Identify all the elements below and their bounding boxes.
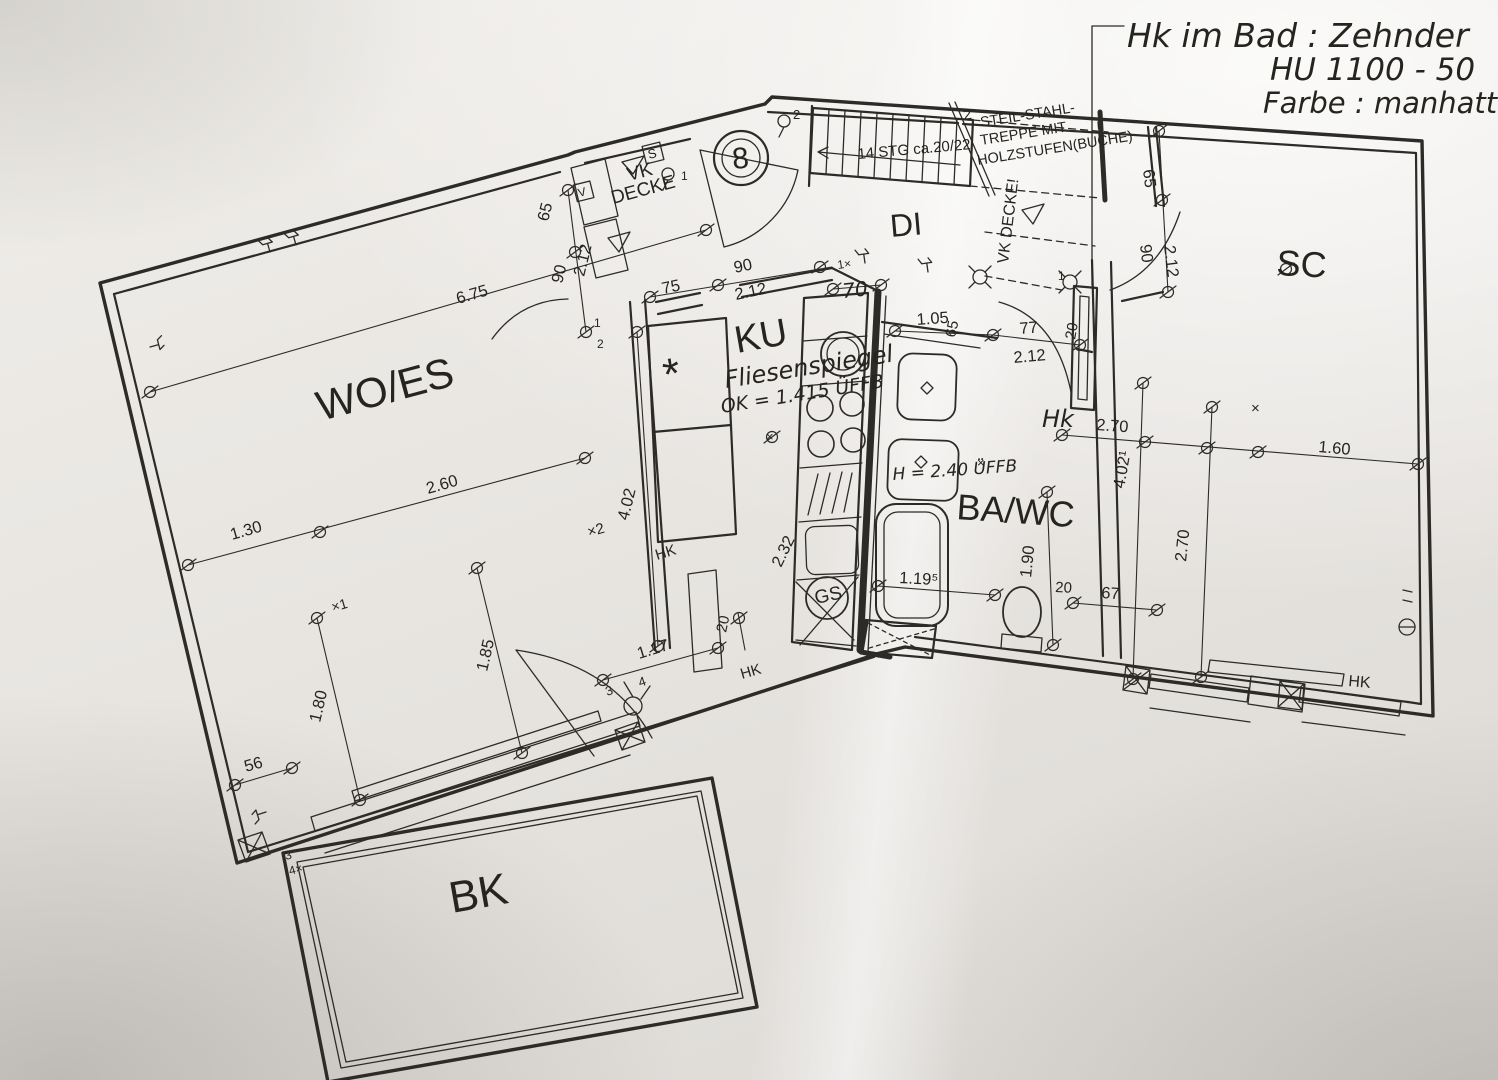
room-label-sc: SC: [1276, 242, 1328, 286]
radiator-bad-inner: [1078, 296, 1089, 400]
dim-1195: 1.19⁵: [899, 569, 939, 589]
door-swing: [516, 650, 652, 756]
triangle-symbol: [1022, 204, 1044, 224]
drainer: [808, 472, 852, 515]
room-label-di: DI: [888, 205, 923, 244]
doors: [492, 150, 1180, 756]
dim-212: 2.12: [570, 242, 595, 278]
switch-icon: [855, 248, 870, 264]
dimension-endpoints: [142, 125, 1426, 806]
bathtub-inner: [884, 512, 940, 618]
dim-20: 20: [1055, 579, 1073, 597]
scanned-floor-plan: Hk im Bad : Zehnder HU 1100 - 50 Farbe :…: [0, 0, 1498, 1080]
dim-65: 65: [534, 201, 556, 223]
cabinet-star: *: [659, 349, 684, 400]
mark-2: 2: [597, 337, 604, 351]
dim-77: 77: [1019, 318, 1039, 338]
diamond-mark: [915, 382, 933, 468]
dim-260: 2.60: [424, 472, 460, 498]
dim-67: 67: [1101, 584, 1121, 603]
dim-90: 90: [732, 255, 754, 276]
window-strip: [311, 712, 640, 831]
switch-icon: [918, 257, 933, 273]
mark-4x: 4×: [287, 861, 304, 878]
leader-line: [1092, 26, 1124, 285]
hand-note-line3: Farbe : manhattan: [1263, 86, 1498, 120]
hand-note-line1: Hk im Bad : Zehnder: [1127, 16, 1471, 55]
dim-65: 65: [942, 319, 962, 339]
kitchen-sink-2: [805, 525, 859, 575]
electrical-symbols: [148, 115, 1415, 824]
dim-90: 90: [548, 263, 570, 285]
mark-1: 1: [594, 316, 601, 330]
dim-185: 1.85: [473, 638, 498, 673]
circle-8-label: 8: [731, 142, 751, 176]
door-swing: [492, 299, 568, 339]
dim-20: 20: [713, 614, 733, 634]
dim-212: 2.12: [1013, 346, 1047, 367]
dim-402: 4.02: [614, 486, 639, 522]
mark-x: ×: [766, 429, 774, 444]
floor-plan-drawing: Hk im Bad : Zehnder HU 1100 - 50 Farbe :…: [0, 0, 1498, 1080]
dim-212: 2.12: [733, 280, 768, 304]
room-label-bk: BK: [445, 864, 511, 922]
dim-20: 20: [1062, 321, 1082, 340]
label-hk: HK: [738, 661, 763, 683]
dim-56: 56: [242, 753, 265, 775]
dim-402-1: 4.02¹: [1110, 449, 1134, 490]
dim-212: 2.12: [1160, 244, 1182, 278]
label-hk: HK: [653, 541, 678, 563]
mark-1: 1: [1058, 269, 1065, 283]
dim-70: 70: [841, 276, 869, 303]
dim-270: 2.70: [1096, 416, 1129, 436]
mark-x: ×: [1251, 400, 1260, 417]
stairs-vk-decke: VK DECKE!: [995, 178, 1022, 265]
hand-height-note: H = 2.40 ÜFFB: [892, 454, 1018, 485]
dim-160: 1.60: [1318, 438, 1352, 459]
switch-icon: [251, 807, 268, 824]
mark-x2: ×2: [585, 520, 606, 541]
label-hk: HK: [1348, 673, 1372, 692]
dim-675: 6.75: [454, 282, 490, 308]
room-label-ku: KU: [731, 311, 790, 362]
label-gs: GS: [813, 583, 844, 609]
dim-270: 2.70: [1172, 529, 1193, 563]
dim-190: 1.90: [1017, 545, 1038, 579]
stairs-steps: 14 STG ca.20/22: [857, 136, 971, 163]
text-layer: Hk im Bad : Zehnder HU 1100 - 50 Farbe :…: [228, 16, 1498, 923]
outer-walls: [100, 97, 1433, 863]
room-label-bawc: BA/WC: [955, 486, 1076, 535]
dim-75: 75: [660, 276, 682, 297]
switch-icon: [148, 336, 165, 352]
mark-x1: ×1: [329, 595, 349, 615]
dim-130: 1.30: [228, 518, 264, 544]
dim-180: 1.80: [306, 689, 331, 724]
bathtub: [876, 504, 948, 626]
dim-65: 65: [1139, 168, 1159, 188]
hand-note-line2: HU 1100 - 50: [1270, 52, 1475, 88]
lamp-icon: [778, 115, 790, 127]
stairs-note-num: 2: [962, 106, 973, 124]
hand-hk-bad: Hk: [1042, 405, 1075, 433]
triangle-symbol: [608, 232, 630, 252]
mark-1: 1: [681, 169, 688, 183]
dim-90: 90: [1136, 243, 1156, 263]
room-label-woes: WO/ES: [311, 348, 458, 430]
mark-1x: 1×: [836, 256, 852, 272]
wc: [1003, 587, 1041, 637]
mark-4: 4: [636, 673, 648, 690]
dim-117: 1.17: [635, 636, 671, 663]
radiator-hk: [1208, 660, 1344, 686]
washbasin: [897, 353, 957, 421]
mark-2: 2: [793, 107, 800, 122]
mark-x: ×: [977, 455, 985, 470]
